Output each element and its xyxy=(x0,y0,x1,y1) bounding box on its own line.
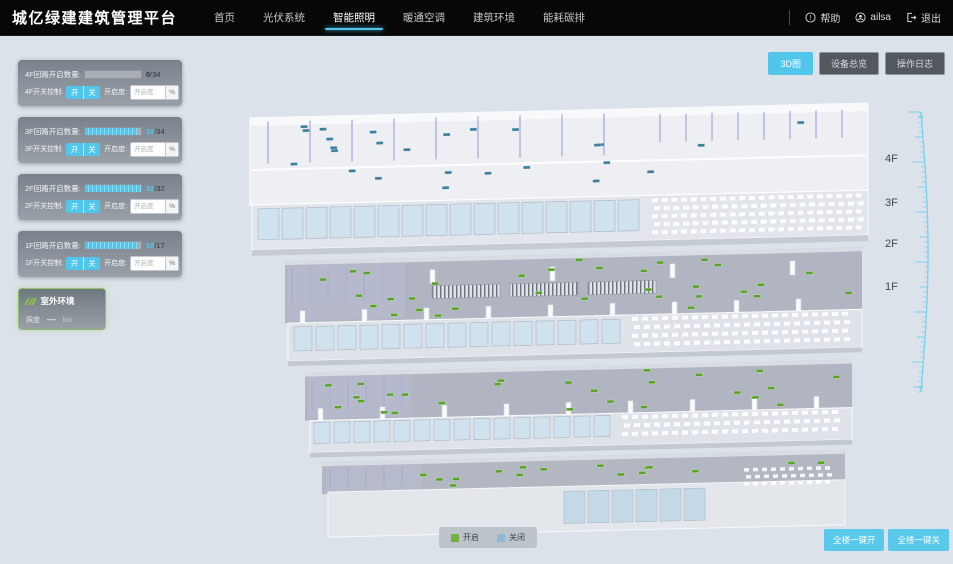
username: ailsa xyxy=(870,12,891,23)
legend-off-swatch xyxy=(497,534,505,542)
switch-control-label: 1F开关控制: xyxy=(25,258,63,268)
all-floors-on-button[interactable]: 全楼一键开 xyxy=(824,529,885,551)
switch-group: 开 关 xyxy=(66,200,100,213)
top-navbar: 城亿绿建建筑管理平台 首页 光伏系统 智能照明 暖通空调 建筑环境 能耗碳排 !… xyxy=(0,0,953,36)
legend-item-on: 开启 xyxy=(451,532,479,543)
dim-label: 开启度: xyxy=(104,87,127,97)
floor-marker-4f[interactable]: 4F xyxy=(885,153,898,165)
floor-1f-model xyxy=(322,450,845,538)
floor-off-button[interactable]: 关 xyxy=(83,143,100,156)
circuit-count-label: 3F回路开启数量: xyxy=(25,126,81,137)
circuit-ratio: 32/34 xyxy=(146,127,165,136)
circuit-count-label: 1F回路开启数量: xyxy=(25,240,81,251)
floor-marker-3f[interactable]: 3F xyxy=(885,197,898,209)
zoom-ruler xyxy=(909,112,928,392)
legend-on-label: 开启 xyxy=(463,532,479,543)
view-3d-button[interactable]: 3D图 xyxy=(768,52,813,75)
circuit-total: /34 xyxy=(154,127,164,136)
floor-off-button[interactable]: 关 xyxy=(83,200,100,213)
switch-group: 开 关 xyxy=(66,257,100,270)
dim-input-group: % xyxy=(130,199,179,214)
circuit-on-count: 32 xyxy=(146,184,154,193)
circuit-total: /17 xyxy=(154,241,164,250)
svg-text:!: ! xyxy=(810,15,812,22)
nav-item-hvac[interactable]: 暖通空调 xyxy=(401,0,447,37)
logout-button[interactable]: 退出 xyxy=(906,10,941,25)
nav-item-building-env[interactable]: 建筑环境 xyxy=(471,0,517,37)
floor-on-button[interactable]: 开 xyxy=(66,257,83,270)
dim-input[interactable] xyxy=(131,257,165,270)
nav-item-pv-system[interactable]: 光伏系统 xyxy=(261,0,307,37)
circuit-on-count: 16 xyxy=(146,241,154,250)
floor-on-button[interactable]: 开 xyxy=(66,143,83,156)
legend-off-label: 关闭 xyxy=(509,532,525,543)
all-floors-off-button[interactable]: 全楼一键关 xyxy=(888,529,949,551)
switch-group: 开 关 xyxy=(66,86,100,99)
switch-control-label: 2F开关控制: xyxy=(25,201,63,211)
user-menu[interactable]: ailsa xyxy=(855,12,891,23)
circuit-ratio: 16/17 xyxy=(146,241,165,250)
page: 城亿绿建建筑管理平台 首页 光伏系统 智能照明 暖通空调 建筑环境 能耗碳排 !… xyxy=(0,0,953,564)
legend-on-swatch xyxy=(451,534,459,542)
logout-icon xyxy=(906,12,917,23)
nav-item-smart-lighting[interactable]: 智能照明 xyxy=(331,0,377,37)
circuit-ratio: 0/34 xyxy=(146,70,161,79)
floor-panel-2f: 2F回路开启数量: 32/32 2F开关控制: 开 关 开启度: % xyxy=(18,174,182,220)
view-toggle: 3D图 设备总览 操作日志 xyxy=(768,52,945,75)
help-label: 帮助 xyxy=(820,10,840,25)
building-model xyxy=(250,103,868,539)
operation-log-button[interactable]: 操作日志 xyxy=(885,52,945,75)
circuit-progress-bar xyxy=(84,127,142,136)
help-icon: ! xyxy=(805,12,816,23)
dim-input-group: % xyxy=(130,85,179,100)
dim-input-group: % xyxy=(130,256,179,271)
switch-group: 开 关 xyxy=(66,143,100,156)
floor-panel-1f: 1F回路开启数量: 16/17 1F开关控制: 开 关 开启度: % xyxy=(18,231,182,277)
floor-marker-1f[interactable]: 1F xyxy=(885,281,898,293)
floor-panel-3f: 3F回路开启数量: 32/34 3F开关控制: 开 关 开启度: % xyxy=(18,117,182,163)
dim-label: 开启度: xyxy=(104,144,127,154)
circuit-ratio: 32/32 xyxy=(146,184,165,193)
outdoor-env-title: 室外环境 xyxy=(41,295,75,307)
nav-item-energy-carbon[interactable]: 能耗碳排 xyxy=(541,0,587,37)
floor-2f-model xyxy=(305,360,852,458)
main-nav: 首页 光伏系统 智能照明 暖通空调 建筑环境 能耗碳排 xyxy=(212,0,587,37)
outdoor-env-panel: 室外环境 照度 — lux xyxy=(18,288,106,330)
circuit-total: /34 xyxy=(150,70,160,79)
illuminance-unit: lux xyxy=(63,317,72,324)
circuit-count-label: 2F回路开启数量: xyxy=(25,183,81,194)
floor-on-button[interactable]: 开 xyxy=(66,86,83,99)
floor-4f-model xyxy=(250,103,868,256)
switch-control-label: 3F开关控制: xyxy=(25,144,63,154)
dim-input[interactable] xyxy=(131,143,165,156)
circuit-count-label: 4F回路开启数量: xyxy=(25,69,81,80)
outdoor-env-icon xyxy=(26,298,37,305)
dim-input[interactable] xyxy=(131,200,165,213)
device-overview-button[interactable]: 设备总览 xyxy=(819,52,879,75)
legend: 开启 关闭 xyxy=(439,527,537,548)
illuminance-label: 照度 xyxy=(26,315,40,325)
circuit-progress-bar xyxy=(84,241,142,250)
floor-off-button[interactable]: 关 xyxy=(83,257,100,270)
switch-control-label: 4F开关控制: xyxy=(25,87,63,97)
bulk-actions: 全楼一键开 全楼一键关 xyxy=(824,529,949,551)
floor-3f-model xyxy=(285,247,862,366)
nav-user-area: ! 帮助 ailsa 退出 xyxy=(789,10,941,25)
nav-item-home[interactable]: 首页 xyxy=(212,0,237,37)
floor-off-button[interactable]: 关 xyxy=(83,86,100,99)
user-icon xyxy=(855,12,866,23)
dim-label: 开启度: xyxy=(104,201,127,211)
circuit-on-count: 32 xyxy=(146,127,154,136)
illuminance-value: — xyxy=(47,314,56,324)
legend-item-off: 关闭 xyxy=(497,532,525,543)
floor-on-button[interactable]: 开 xyxy=(66,200,83,213)
dim-input[interactable] xyxy=(131,86,165,99)
dim-unit-button[interactable]: % xyxy=(165,86,178,99)
dim-unit-button[interactable]: % xyxy=(165,257,178,270)
dim-unit-button[interactable]: % xyxy=(165,200,178,213)
logout-label: 退出 xyxy=(921,10,941,25)
dim-unit-button[interactable]: % xyxy=(165,143,178,156)
floor-marker-2f[interactable]: 2F xyxy=(885,238,898,250)
circuit-progress-bar xyxy=(84,70,142,79)
circuit-progress-bar xyxy=(84,184,142,193)
circuit-total: /32 xyxy=(154,184,164,193)
app-title: 城亿绿建建筑管理平台 xyxy=(12,7,177,28)
help-button[interactable]: ! 帮助 xyxy=(805,10,840,25)
dim-input-group: % xyxy=(130,142,179,157)
nav-divider xyxy=(789,10,790,25)
dim-label: 开启度: xyxy=(104,258,127,268)
floor-panel-4f: 4F回路开启数量: 0/34 4F开关控制: 开 关 开启度: % xyxy=(18,60,182,106)
